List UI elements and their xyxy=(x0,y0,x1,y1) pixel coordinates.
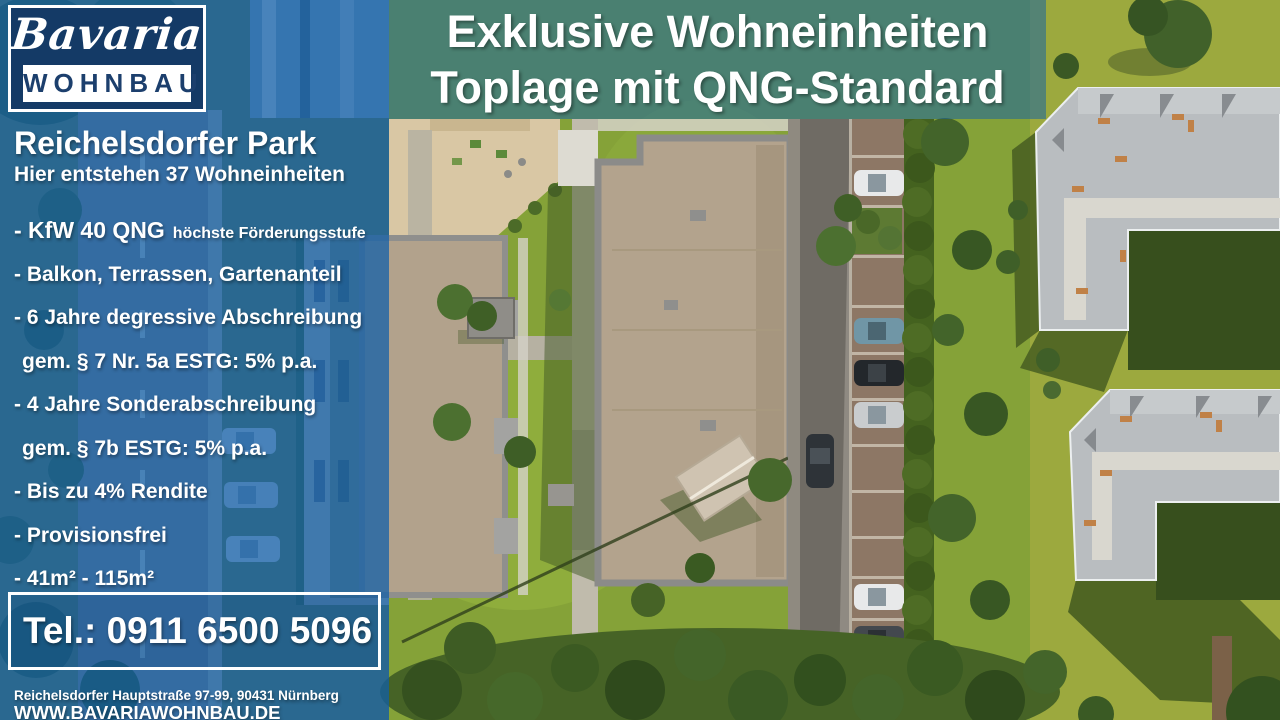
website-url: WWW.BAVARIAWOHNBAU.DE xyxy=(14,702,281,720)
project-title: Reichelsdorfer Park xyxy=(14,125,316,162)
feature-provisionsfrei: - Provisionsfrei xyxy=(14,514,386,558)
feature-par7b: gem. § 7b ESTG: 5% p.a. xyxy=(14,427,386,471)
feature-sonderabschreibung: - 4 Jahre Sonderabschreibung xyxy=(14,383,386,427)
logo-word-text: WOHNBAU xyxy=(23,65,191,102)
flyer: Exklusive Wohneinheiten Toplage mit QNG-… xyxy=(0,0,1280,720)
feature-kfw: - KfW 40 QNGhöchste Förderungsstufe xyxy=(14,209,386,253)
hedge xyxy=(902,119,935,720)
feature-rendite: - Bis zu 4% Rendite xyxy=(14,470,386,514)
company-logo: Bavaria WOHNBAU xyxy=(8,5,206,112)
project-subtitle: Hier entstehen 37 Wohneinheiten xyxy=(14,163,345,187)
headline: Exklusive Wohneinheiten Toplage mit QNG-… xyxy=(389,0,1046,119)
feature-balkon: - Balkon, Terrassen, Gartenanteil xyxy=(14,253,386,297)
building-top-right xyxy=(1012,88,1280,392)
headline-line1: Exklusive Wohneinheiten xyxy=(447,4,989,60)
street-address: Reichelsdorfer Hauptstraße 97-99, 90431 … xyxy=(14,688,339,703)
feature-par7-5a: gem. § 7 Nr. 5a ESTG: 5% p.a. xyxy=(14,340,386,384)
phone-number: Tel.: 0911 6500 5096 xyxy=(23,595,372,667)
feature-degressive: - 6 Jahre degressive Abschreibung xyxy=(14,296,386,340)
feature-list: - KfW 40 QNGhöchste Förderungsstufe - Ba… xyxy=(14,209,386,601)
headline-line2: Toplage mit QNG-Standard xyxy=(430,60,1004,116)
phone-box: Tel.: 0911 6500 5096 xyxy=(8,592,381,670)
logo-script-text: Bavaria xyxy=(8,10,205,60)
